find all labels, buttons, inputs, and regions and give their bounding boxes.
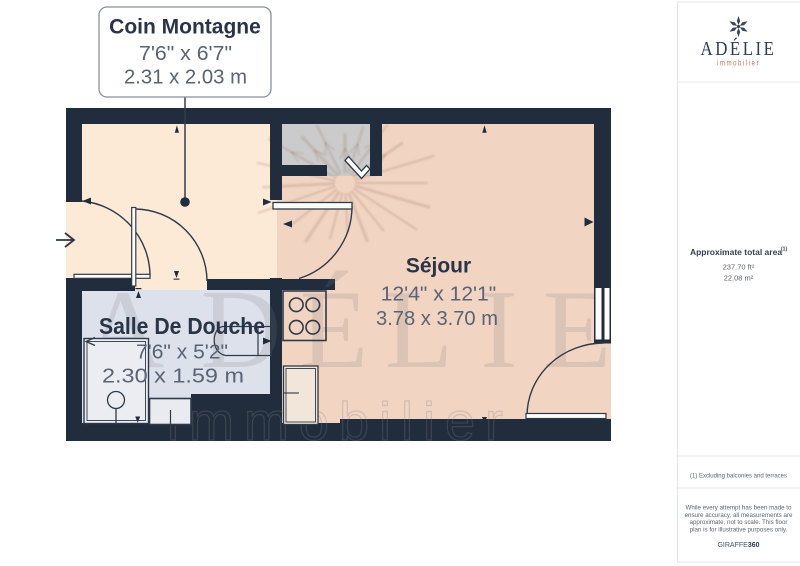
svg-text:2.30 x 1.59 m: 2.30 x 1.59 m (102, 366, 244, 388)
svg-text:(1) Excluding balconies and te: (1) Excluding balconies and terraces (690, 474, 787, 480)
svg-text:3.78 x 3.70 m: 3.78 x 3.70 m (376, 308, 498, 330)
svg-text:GIRAFFE360: GIRAFFE360 (717, 542, 759, 549)
svg-text:12'4" x 12'1": 12'4" x 12'1" (381, 284, 497, 306)
svg-text:immobilier: immobilier (167, 392, 513, 452)
svg-text:2.31 x 2.03 m: 2.31 x 2.03 m (124, 67, 247, 89)
svg-text:7'6" x 6'7": 7'6" x 6'7" (139, 43, 232, 65)
svg-text:Salle De Douche: Salle De Douche (99, 313, 265, 339)
svg-text:ADÉLIE: ADÉLIE (701, 37, 777, 60)
svg-text:7'6" x 5'2": 7'6" x 5'2" (136, 342, 228, 364)
svg-text:237.70 ft²: 237.70 ft² (723, 263, 755, 272)
svg-text:ensure accuracy, all measureme: ensure accuracy, all measurements are (685, 512, 793, 519)
svg-text:Coin Montagne: Coin Montagne (109, 16, 261, 39)
svg-text:Approximate total area: Approximate total area (690, 247, 782, 257)
svg-text:approximate, not to scale. Thi: approximate, not to scale. This floor (690, 519, 788, 526)
svg-text:plan is for illustrative purpo: plan is for illustrative purposes only. (690, 526, 788, 533)
svg-text:immobilier: immobilier (717, 59, 760, 68)
svg-text:While every attempt has been m: While every attempt has been made to (686, 505, 792, 512)
svg-text:Séjour: Séjour (406, 255, 471, 278)
svg-text:22.08 m²: 22.08 m² (724, 274, 754, 283)
svg-text:(1): (1) (781, 247, 787, 253)
